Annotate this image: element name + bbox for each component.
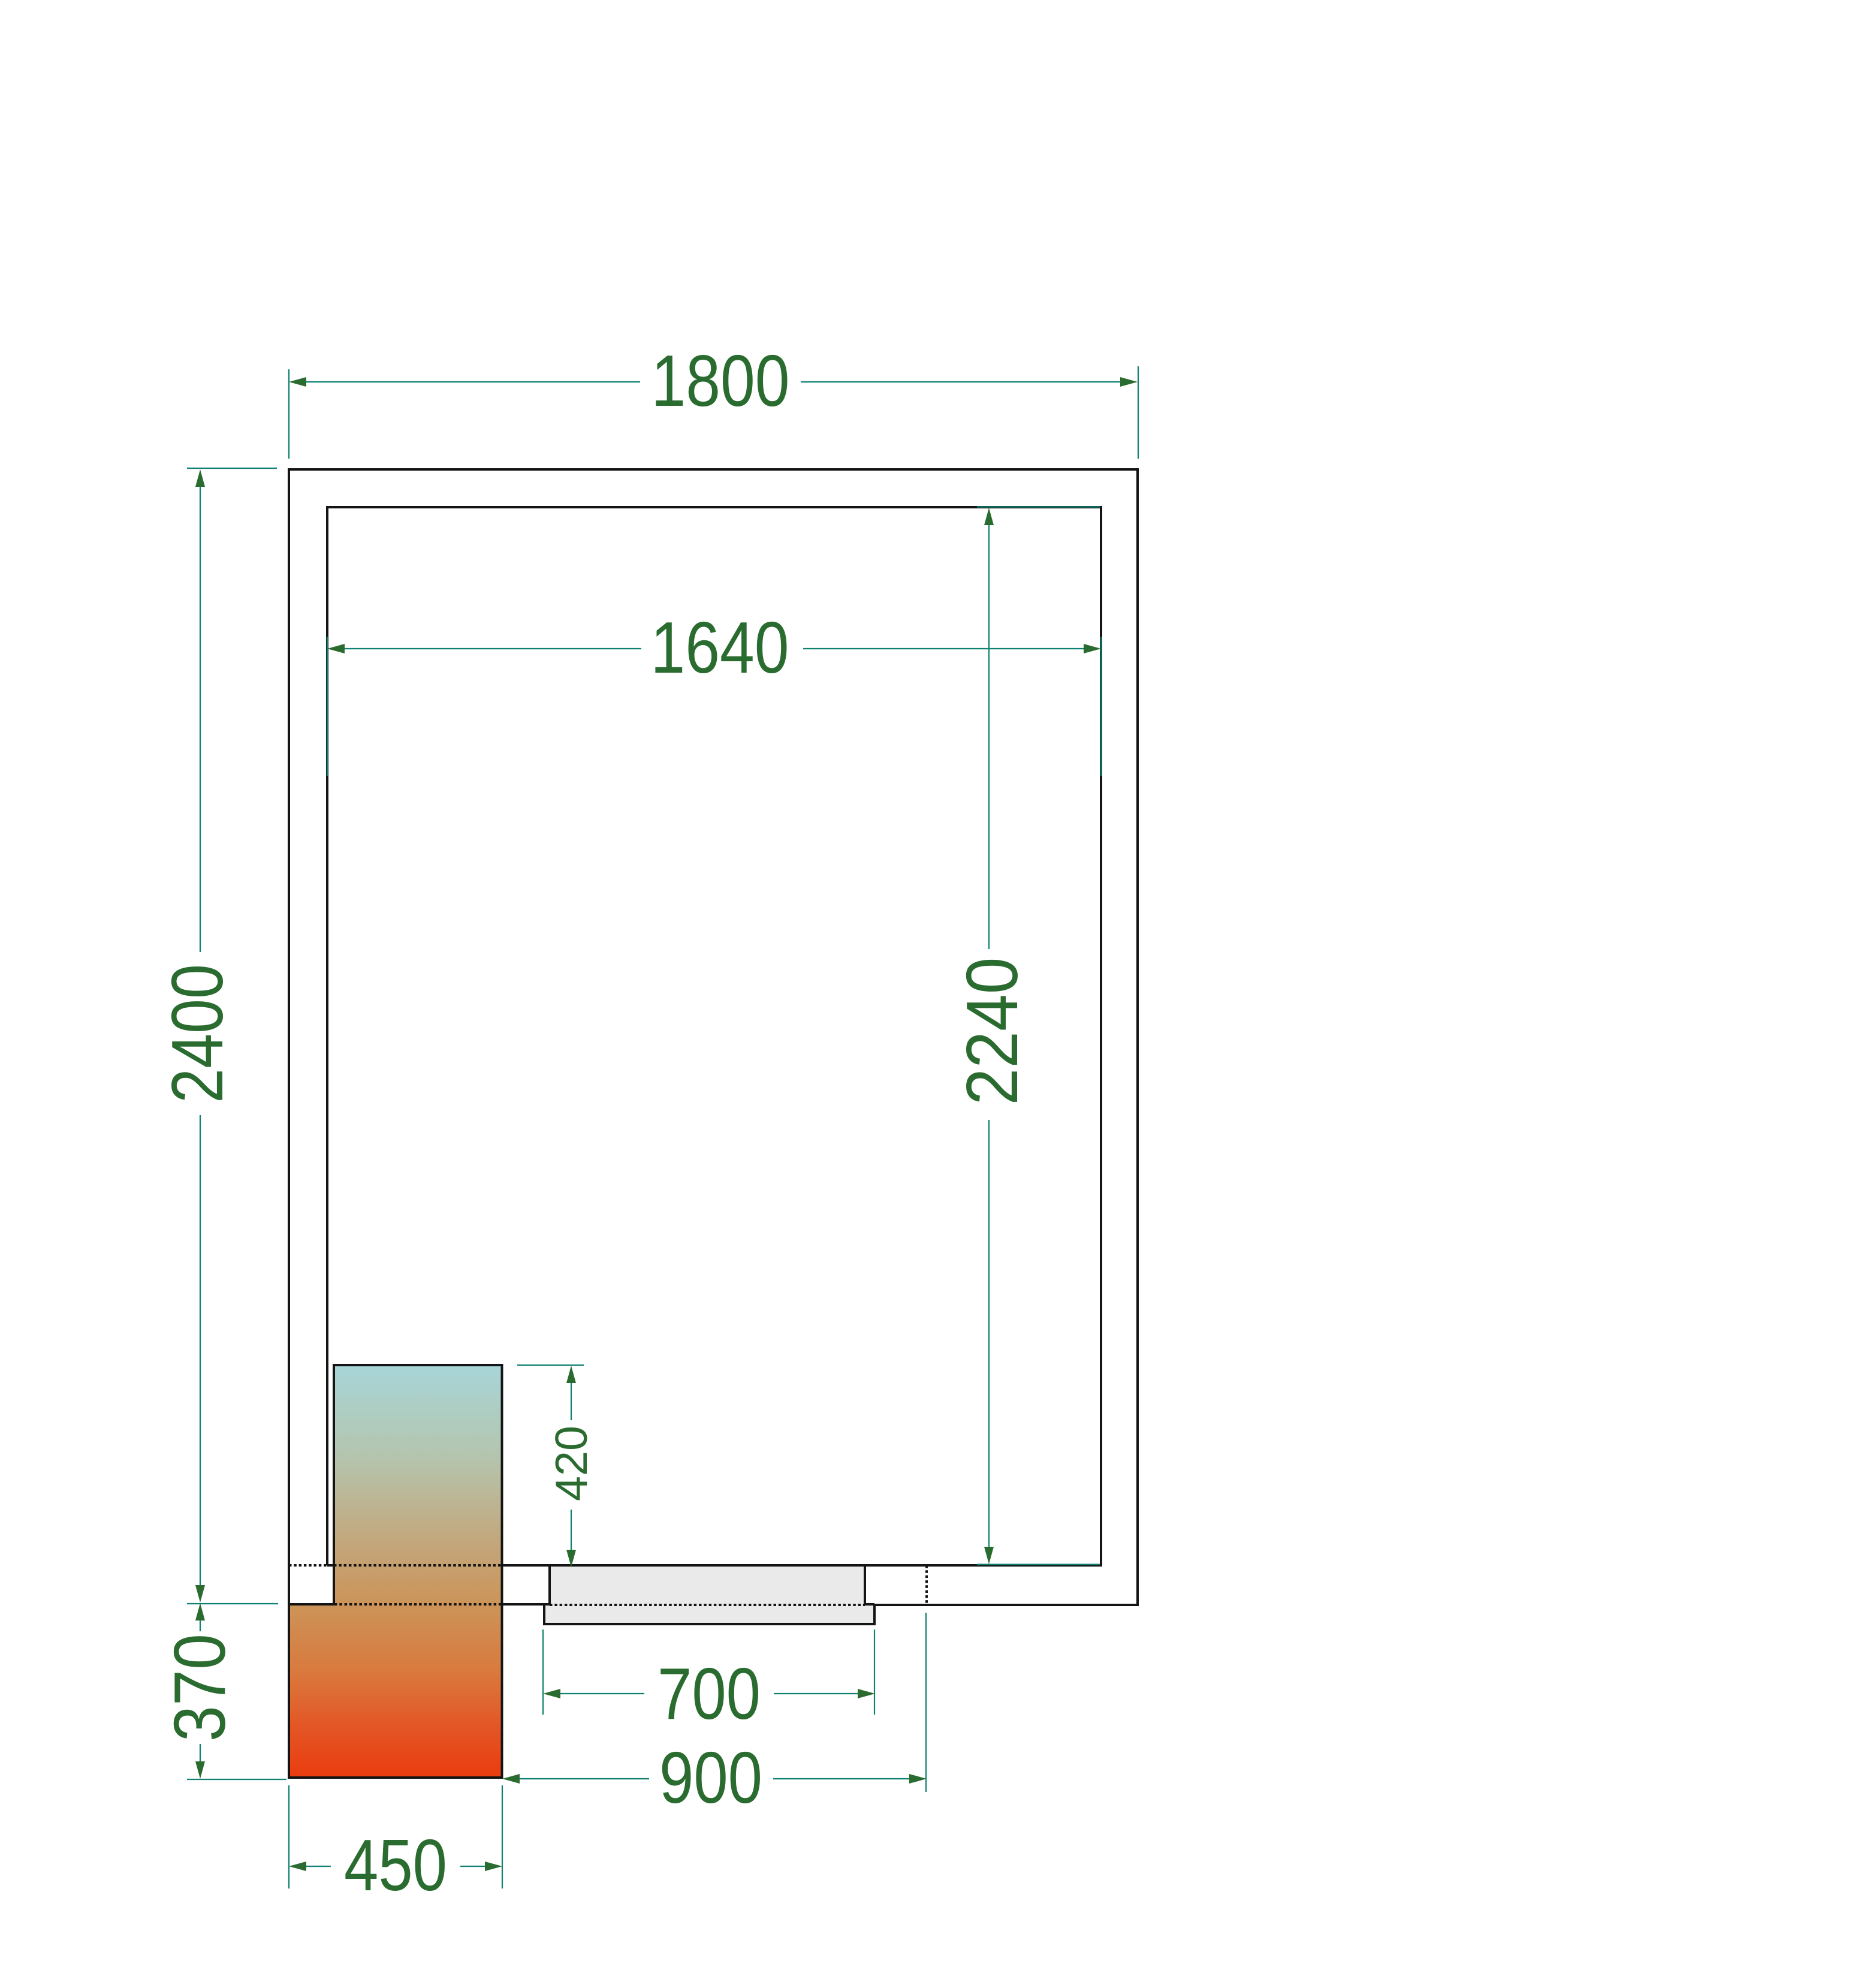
svg-text:420: 420: [546, 1426, 596, 1501]
svg-text:370: 370: [159, 1634, 240, 1742]
svg-text:1640: 1640: [651, 607, 789, 688]
svg-text:1800: 1800: [652, 340, 790, 421]
svg-text:2240: 2240: [951, 957, 1033, 1106]
svg-text:450: 450: [344, 1824, 447, 1906]
svg-text:2400: 2400: [156, 964, 238, 1103]
svg-text:700: 700: [657, 1653, 761, 1734]
svg-text:900: 900: [659, 1737, 762, 1818]
